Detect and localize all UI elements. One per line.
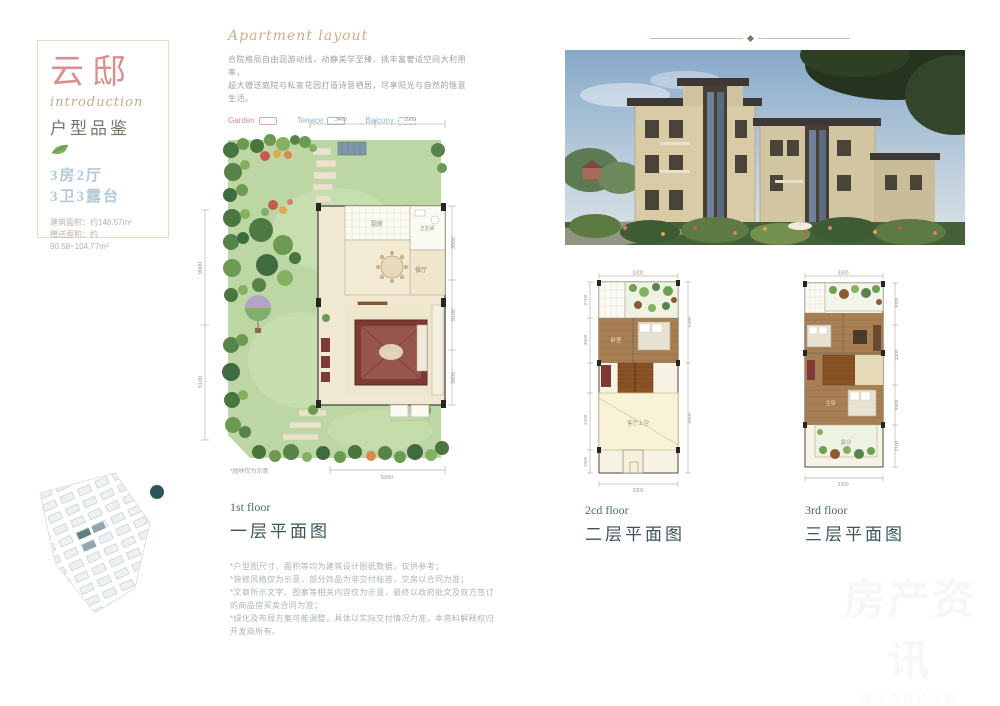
- room-label-kitchen: 厨房: [371, 220, 383, 228]
- photo-divider: [650, 34, 850, 42]
- room-summary-line2: 3卫3露台: [50, 187, 156, 208]
- room-label-dining: 餐厅: [415, 266, 427, 274]
- room-summary: 3房2厅 3卫3露台: [50, 166, 156, 208]
- first-floor-plan: 3400 5900: [195, 110, 460, 495]
- watermark: 房产资讯 楼市资讯抢先看: [822, 566, 997, 706]
- dim-label: 4200: [583, 414, 589, 425]
- dim-label: 3300: [837, 482, 848, 488]
- garden-note: *园林仅为示意: [230, 467, 268, 475]
- second-floor-label-en: 2cd floor: [585, 503, 685, 518]
- second-floor-label: 2cd floor 二层平面图: [585, 503, 685, 545]
- diamond-icon: [746, 34, 753, 41]
- void-label: 客厅上空: [627, 419, 650, 427]
- dim-label: 3300: [632, 488, 643, 494]
- dim-label: 1800: [583, 456, 589, 467]
- dim-label: 5100: [451, 309, 457, 321]
- site-plan-map: [25, 468, 185, 643]
- dim-label: 3400: [335, 117, 347, 123]
- dim-label: 6900: [687, 412, 693, 423]
- disclaimer-line: *户型图尺寸、面积等均为建筑设计图纸数据，仅供参考；: [230, 560, 500, 573]
- room-summary-line1: 3房2厅: [50, 166, 156, 187]
- dim-label: 3300: [894, 349, 900, 360]
- disclaimer-line: *装修风格仅为示意，部分饰品为非交付标准，交房以合同为准；: [230, 573, 500, 586]
- dim-label: 3300: [837, 271, 848, 277]
- area-line2: 赠送面积：约90.58~104.77m²: [50, 229, 156, 253]
- dim-label: 3900: [894, 399, 900, 410]
- first-floor-label-cn: 一层平面图: [230, 517, 330, 542]
- disclaimer-line: *文章所示文字、图案等相关内容仅为示意，最终以政府批文及双方签订的商品房买卖合同…: [230, 586, 500, 612]
- dim-label: 5400: [687, 316, 693, 327]
- disclaimer-notes: *户型图尺寸、面积等均为建筑设计图纸数据，仅供参考； *装修风格仅为示意，部分饰…: [230, 560, 500, 638]
- leaf-icon: [50, 142, 156, 156]
- dim-label: 3600: [583, 334, 589, 345]
- first-floor-label: 1st floor 一层平面图: [230, 500, 330, 542]
- second-floor-label-cn: 二层平面图: [585, 520, 685, 545]
- second-floor-plan: 3300 客厅上空 卧室: [578, 270, 708, 505]
- intro-script-title: Apartment layout: [228, 28, 466, 44]
- third-floor-label-en: 3rd floor: [805, 503, 905, 518]
- room-label-living: 客厅: [386, 351, 398, 359]
- intro-desc-line1: 合院格局自由洄游动线，动静美学至臻，挑丰富奢适空间大利用率，: [228, 53, 466, 79]
- room-label-bed: 卧室: [813, 334, 825, 342]
- dim-label: 2100: [894, 440, 900, 451]
- room-label-terrace: 露台: [840, 438, 852, 446]
- dim-label: 5900: [404, 117, 416, 123]
- intro-description: 合院格局自由洄游动线，动静美学至臻，挑丰富奢适空间大利用率， 超大赠送庭院与私家…: [228, 53, 466, 105]
- disclaimer-line: *绿化及布局方案可能调整，具体以实际交付情况为准，本资料解释权归开发商所有。: [230, 612, 500, 638]
- introduction-script: introduction: [50, 95, 156, 110]
- dim-label: 5900: [381, 475, 393, 481]
- first-floor-label-en: 1st floor: [230, 500, 330, 515]
- room-label-master: 主卧: [825, 399, 837, 407]
- project-info-card: 云邸 introduction 户型品鉴 3房2厅 3卫3露台 建筑面积：约14…: [37, 40, 169, 238]
- area-info: 建筑面积：约148.57m² 赠送面积：约90.58~104.77m²: [50, 217, 156, 253]
- area-line1: 建筑面积：约148.57m²: [50, 217, 156, 229]
- room-label-bath: 卫生间: [419, 225, 434, 232]
- house-footprint: [316, 203, 446, 420]
- project-title: 云邸: [50, 55, 156, 91]
- dim-label: 5100: [198, 376, 204, 388]
- third-floor-plan: 3300: [793, 270, 933, 505]
- watermark-main: 房产资讯: [822, 566, 997, 688]
- dim-label: 2700: [583, 294, 589, 305]
- room-label-bed: 卧室: [610, 336, 622, 344]
- intro-desc-line2: 超大赠送庭院与私家花园打造诗意栖居，尽享阳光与自然的惬意生活。: [228, 79, 466, 105]
- third-floor-label-cn: 三层平面图: [805, 520, 905, 545]
- third-floor-label: 3rd floor 三层平面图: [805, 503, 905, 545]
- dim-label: 3600: [451, 372, 457, 384]
- dim-label: 9000: [198, 262, 204, 274]
- dim-label: 3300: [632, 271, 643, 277]
- card-subtitle: 户型品鉴: [50, 114, 156, 139]
- dim-label: 3000: [894, 297, 900, 308]
- building-rendering-photo: [565, 50, 965, 245]
- watermark-sub: 楼市资讯抢先看: [822, 690, 997, 706]
- location-marker-icon: [150, 485, 164, 499]
- dim-label: 3900: [451, 237, 457, 249]
